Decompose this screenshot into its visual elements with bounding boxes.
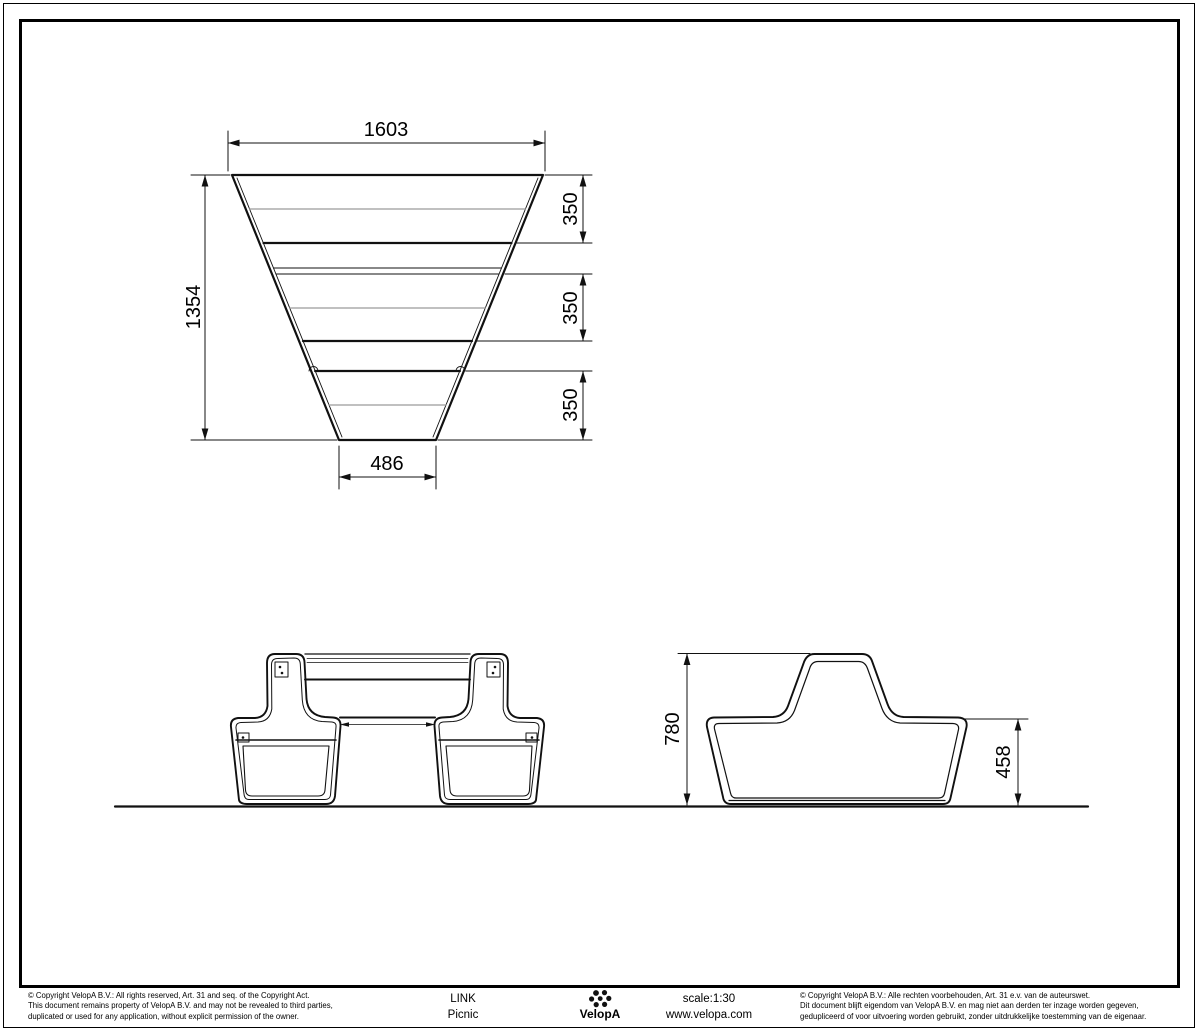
bolt-dot [279, 666, 282, 669]
front-left-unit [231, 654, 341, 804]
dim-top-width-label: 1603 [364, 119, 409, 141]
copyright-dutch: © Copyright VelopA B.V.: Alle rechten vo… [800, 991, 1146, 1022]
copyright-english: © Copyright VelopA B.V.: All rights rese… [28, 991, 333, 1022]
bolt-plate [275, 662, 288, 677]
side-view [678, 654, 1028, 806]
side-outline-inner [714, 662, 958, 799]
front-seat-bridge [340, 718, 435, 727]
product-variant: Picnic [408, 1007, 518, 1023]
front-view [115, 654, 1088, 807]
copyright-en-line3: duplicated or used for any application, … [28, 1012, 333, 1022]
bolt-dot [492, 672, 495, 675]
title-block: LINK Picnic [408, 991, 518, 1023]
dim-seat-height-label: 458 [993, 745, 1015, 778]
side-outline-outer [707, 654, 967, 804]
product-name: LINK [408, 991, 518, 1007]
drawing-sheet: { "top_view": { "dim_width_top": "1603",… [0, 0, 1198, 1031]
bolt-dot [531, 736, 534, 739]
website-text: www.velopa.com [650, 1007, 768, 1023]
scale-label: scale:1:30 [650, 991, 768, 1007]
dim-seg1-label: 350 [560, 192, 582, 225]
brand-name: VelopA [572, 1007, 628, 1021]
dim-bottom-width-label: 486 [370, 453, 403, 475]
copyright-nl-line3: gedupliceerd of voor uitvoering worden g… [800, 1012, 1146, 1022]
copyright-nl-line2: Dit document blijft eigendom van VelopA … [800, 1001, 1146, 1011]
scale-block: scale:1:30 www.velopa.com [650, 991, 768, 1023]
dim-height-label: 1354 [183, 285, 205, 330]
top-view [191, 131, 592, 489]
bolt-plate [487, 662, 500, 677]
front-tabletop-slats [305, 654, 470, 680]
dim-seg3-label: 350 [560, 388, 582, 421]
dim-total-height [678, 654, 810, 806]
front-right-unit [434, 654, 544, 804]
technical-drawing-canvas: 1603 1354 350 350 350 486 [0, 0, 1198, 1031]
dim-seg2-label: 350 [560, 291, 582, 324]
bolt-dot [494, 666, 497, 669]
velopa-logo-icon [587, 989, 614, 1008]
dim-total-height-label: 780 [662, 712, 684, 745]
bolt-dot [281, 672, 284, 675]
copyright-nl-line1: © Copyright VelopA B.V.: Alle rechten vo… [800, 991, 1146, 1001]
copyright-en-line1: © Copyright VelopA B.V.: All rights rese… [28, 991, 333, 1001]
copyright-en-line2: This document remains property of VelopA… [28, 1001, 333, 1011]
bolt-dot [242, 736, 245, 739]
